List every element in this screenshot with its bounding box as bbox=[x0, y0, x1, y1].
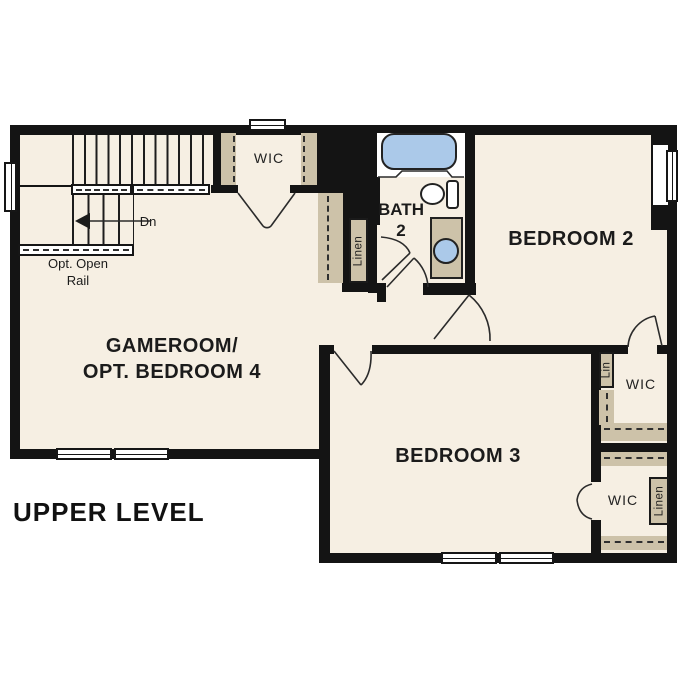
stair-down-label: Dn bbox=[134, 213, 162, 229]
open-rail-label-line1: Opt. Open bbox=[28, 256, 128, 271]
wall-spur bbox=[377, 283, 386, 302]
room-label-gameroom-line1: GAMEROOM/ bbox=[62, 335, 282, 357]
wall-bedroom3-bottom bbox=[319, 553, 677, 563]
room-label-bedroom2: BEDROOM 2 bbox=[461, 228, 681, 250]
stair-rail bbox=[132, 184, 210, 195]
label-wic-bedroom2: WIC bbox=[611, 376, 671, 392]
window-gameroom-south bbox=[114, 448, 169, 460]
wall-bedroom3-west bbox=[319, 345, 330, 563]
wall-linen-cap bbox=[342, 283, 377, 292]
closet-rod-wic-top-right bbox=[301, 133, 317, 185]
wall-wic-top-left bbox=[213, 125, 221, 193]
wall-wic-column-west-lower bbox=[591, 520, 601, 563]
wall-void-block bbox=[312, 125, 380, 192]
room-label-bath-line1: BATH bbox=[361, 201, 441, 219]
stair-opening-line bbox=[19, 185, 72, 187]
optional-open-rail bbox=[18, 244, 134, 256]
closet-rod-hall bbox=[318, 193, 343, 283]
stair-lower-run bbox=[72, 195, 134, 245]
window-wic-top bbox=[249, 119, 286, 131]
wall-between-wics bbox=[591, 443, 677, 452]
open-rail-label-line2: Rail bbox=[28, 273, 128, 288]
closet-rod-wic-top-left bbox=[221, 133, 236, 185]
wall-segment bbox=[319, 345, 334, 354]
wall-segment bbox=[211, 185, 238, 193]
stair-rail bbox=[71, 184, 132, 195]
wall-segment bbox=[657, 345, 677, 354]
wall-hall-south bbox=[372, 345, 628, 354]
shelf-wic-bedroom2 bbox=[601, 423, 667, 441]
page-title: UPPER LEVEL bbox=[13, 497, 205, 528]
window-gameroom-south bbox=[56, 448, 112, 460]
wall-bedroom2-west bbox=[465, 125, 475, 295]
room-label-bath-line2: 2 bbox=[361, 222, 441, 240]
wall-segment bbox=[311, 185, 343, 193]
label-wic-bedroom3: WIC bbox=[593, 492, 653, 508]
vanity-sink bbox=[433, 238, 459, 264]
window-bedroom3-south bbox=[499, 552, 554, 564]
label-wic-top: WIC bbox=[237, 150, 301, 166]
room-label-gameroom-line2: OPT. BEDROOM 4 bbox=[62, 361, 282, 383]
window-bedroom2-east bbox=[666, 150, 678, 202]
window-bedroom3-south bbox=[441, 552, 497, 564]
linen-wic-label: Linen bbox=[653, 486, 665, 517]
closet-rod-wic-bedroom2 bbox=[599, 390, 614, 425]
room-label-bedroom3: BEDROOM 3 bbox=[348, 445, 568, 467]
floor-plan-canvas: Linen Lin Linen GAMEROOM/ OPT. BEDROOM 4 bbox=[0, 0, 687, 687]
window-gameroom-west bbox=[4, 162, 17, 212]
stair-upper-run bbox=[72, 135, 213, 185]
toilet-tank bbox=[446, 180, 459, 209]
bathtub bbox=[381, 133, 457, 170]
shelf-wic-bedroom3-top bbox=[601, 452, 667, 466]
shelf-wic-bedroom3-bottom bbox=[601, 536, 667, 550]
